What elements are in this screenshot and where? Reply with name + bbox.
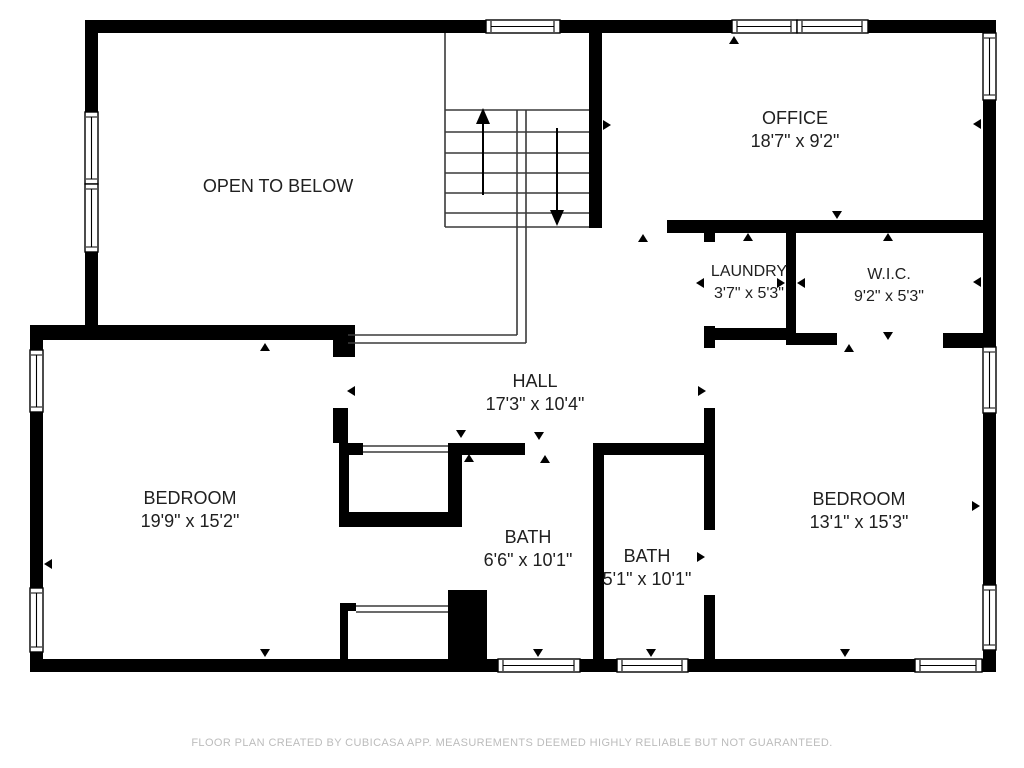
room-dimensions: 18'7" x 9'2" <box>751 130 840 153</box>
room-label-bath-right: BATH 5'1" x 10'1" <box>603 545 692 591</box>
room-dimensions: 9'2" x 5'3" <box>854 286 924 308</box>
window <box>85 112 98 184</box>
stairs-up-arrow <box>476 108 490 195</box>
window <box>983 585 996 650</box>
room-label-bath-left: BATH 6'6" x 10'1" <box>484 526 573 572</box>
window <box>915 659 982 672</box>
room-name: LAUNDRY <box>711 263 787 280</box>
room-name: OFFICE <box>762 108 828 128</box>
window <box>617 659 688 672</box>
stairs-down-arrow <box>550 128 564 226</box>
room-label-office: OFFICE 18'7" x 9'2" <box>751 107 840 153</box>
room-label-laundry: LAUNDRY 3'7" x 5'3" <box>711 261 787 305</box>
room-label-hall: HALL 17'3" x 10'4" <box>486 370 585 416</box>
window <box>983 347 996 413</box>
room-label-bedroom-right: BEDROOM 13'1" x 15'3" <box>810 488 909 534</box>
railing <box>348 335 526 343</box>
window <box>797 20 868 33</box>
room-dimensions: 13'1" x 15'3" <box>810 511 909 534</box>
room-dimensions: 3'7" x 5'3" <box>711 283 787 305</box>
window <box>498 659 580 672</box>
room-name: OPEN TO BELOW <box>203 176 353 196</box>
room-dimensions: 5'1" x 10'1" <box>603 568 692 591</box>
window <box>983 33 996 100</box>
room-name: HALL <box>512 371 557 391</box>
room-name: BEDROOM <box>143 488 236 508</box>
room-dimensions: 17'3" x 10'4" <box>486 393 585 416</box>
room-label-open-to-below: OPEN TO BELOW <box>203 175 353 198</box>
window <box>486 20 560 33</box>
room-dimensions: 6'6" x 10'1" <box>484 549 573 572</box>
room-name: BATH <box>624 546 671 566</box>
room-dimensions: 19'9" x 15'2" <box>141 510 240 533</box>
window <box>30 350 43 412</box>
window <box>732 20 797 33</box>
room-label-bedroom-left: BEDROOM 19'9" x 15'2" <box>141 487 240 533</box>
room-name: BEDROOM <box>812 489 905 509</box>
windows <box>30 20 996 672</box>
room-name: BATH <box>505 527 552 547</box>
room-label-wic: W.I.C. 9'2" x 5'3" <box>854 264 924 308</box>
walls <box>30 20 996 672</box>
window <box>85 184 98 252</box>
staircase <box>445 33 589 343</box>
floorplan-canvas: OPEN TO BELOW OFFICE 18'7" x 9'2" LAUNDR… <box>0 0 1024 768</box>
footer-disclaimer: FLOOR PLAN CREATED BY CUBICASA APP. MEAS… <box>0 737 1024 749</box>
closet-openings <box>356 446 448 612</box>
window <box>30 588 43 652</box>
room-name: W.I.C. <box>867 266 911 283</box>
